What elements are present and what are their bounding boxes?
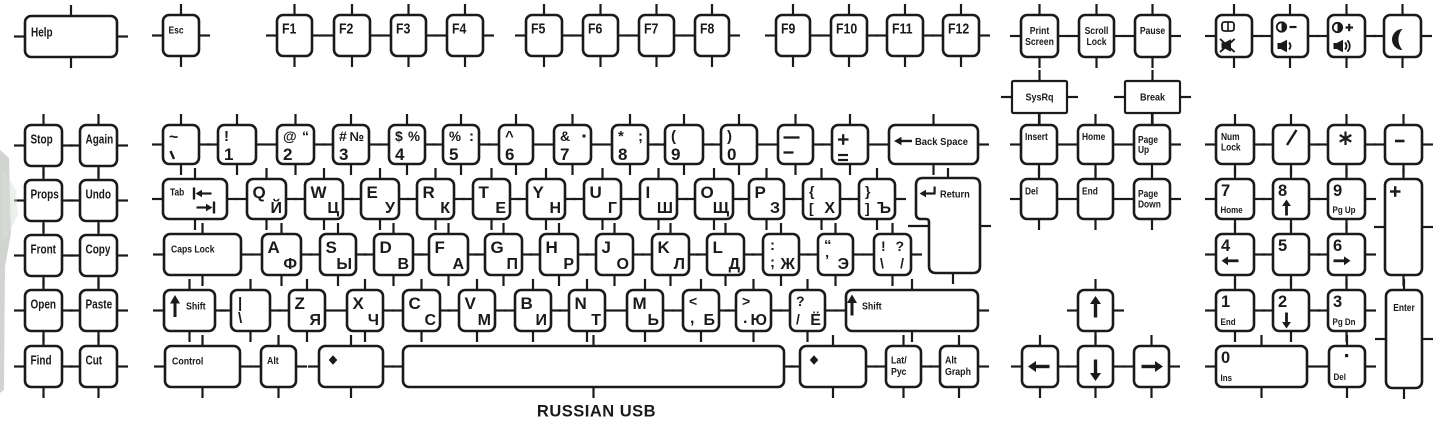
svg-text:Return: Return <box>940 189 970 201</box>
svg-text:4: 4 <box>395 145 405 164</box>
svg-text:П: П <box>507 256 519 273</box>
svg-text:K: K <box>658 238 671 257</box>
svg-text:F10: F10 <box>836 21 857 37</box>
svg-text:Insert: Insert <box>1025 131 1048 142</box>
svg-text:]: ] <box>865 200 870 216</box>
svg-text:Screen: Screen <box>1025 36 1054 47</box>
svg-text:Р: Р <box>563 256 574 273</box>
svg-text:): ) <box>727 128 732 145</box>
svg-text:Esc: Esc <box>169 25 184 37</box>
svg-text:Alt: Alt <box>945 355 957 367</box>
svg-text:@: @ <box>283 128 297 144</box>
svg-text:F8: F8 <box>700 21 715 37</box>
svg-text:’: ’ <box>825 252 829 269</box>
svg-text:0: 0 <box>1221 349 1230 367</box>
svg-text:End: End <box>1082 186 1098 197</box>
svg-text:C: C <box>409 294 421 313</box>
svg-text:Я: Я <box>310 312 322 329</box>
svg-text:Д: Д <box>729 256 741 273</box>
svg-text:Ф: Ф <box>283 256 297 273</box>
svg-text:Щ: Щ <box>713 200 730 217</box>
svg-text:RUSSIAN USB: RUSSIAN USB <box>537 403 656 421</box>
svg-text:5: 5 <box>449 145 458 164</box>
svg-text:Del: Del <box>1025 186 1038 197</box>
svg-text:Ё: Ё <box>810 311 821 329</box>
svg-text:,: , <box>690 310 694 327</box>
svg-text:6: 6 <box>1333 237 1342 255</box>
svg-text:9: 9 <box>671 145 680 164</box>
svg-text:3: 3 <box>339 145 348 164</box>
svg-text:Scroll: Scroll <box>1085 25 1109 36</box>
svg-text:Caps Lock: Caps Lock <box>171 244 215 256</box>
svg-text:Г: Г <box>608 200 617 217</box>
svg-text:%: % <box>408 129 420 144</box>
svg-text:X: X <box>353 294 365 313</box>
svg-text:J: J <box>602 238 611 257</box>
svg-text:F: F <box>435 238 445 257</box>
svg-text:Props: Props <box>31 189 59 202</box>
svg-text:>: > <box>742 293 750 309</box>
svg-text:Enter: Enter <box>1393 302 1415 313</box>
svg-text:F5: F5 <box>531 21 546 37</box>
svg-text:F12: F12 <box>948 21 969 37</box>
svg-text:Ы: Ы <box>336 256 352 273</box>
svg-text:2: 2 <box>1278 293 1287 311</box>
svg-text:Shift: Shift <box>186 301 206 313</box>
svg-text:Э: Э <box>838 256 849 273</box>
svg-text:Break: Break <box>1140 92 1166 104</box>
svg-text:?: ? <box>796 293 805 309</box>
svg-text:Л: Л <box>674 256 685 273</box>
svg-text:<: < <box>689 293 697 309</box>
svg-text:Open: Open <box>31 299 57 312</box>
svg-text:Graph: Graph <box>945 366 971 378</box>
svg-text:Ins: Ins <box>1221 372 1233 383</box>
svg-text:Alt: Alt <box>267 355 279 367</box>
svg-text:F11: F11 <box>892 21 913 37</box>
svg-text:Ъ: Ъ <box>877 200 891 217</box>
svg-text:.: . <box>743 310 747 327</box>
svg-text:9: 9 <box>1333 182 1342 200</box>
svg-text::: : <box>469 128 474 145</box>
svg-text:Ц: Ц <box>327 200 339 217</box>
svg-text:M: M <box>633 294 647 313</box>
svg-text:W: W <box>311 183 328 202</box>
svg-text:Й: Й <box>271 198 283 217</box>
svg-text:E: E <box>367 183 378 202</box>
svg-text:Back Space: Back Space <box>915 137 968 149</box>
svg-text:Tab: Tab <box>170 187 185 198</box>
svg-text:Т: Т <box>591 312 601 329</box>
svg-text:Again: Again <box>86 134 114 147</box>
svg-text:Ю: Ю <box>751 312 768 329</box>
svg-text:Copy: Copy <box>86 244 112 257</box>
svg-text:А: А <box>452 256 464 273</box>
svg-text:Б: Б <box>704 312 716 329</box>
svg-text:F4: F4 <box>452 21 467 37</box>
svg-text:U: U <box>590 183 602 202</box>
svg-text:Ч: Ч <box>368 312 379 329</box>
svg-text:Н: Н <box>549 200 561 217</box>
svg-text:F9: F9 <box>781 21 795 37</box>
svg-text:}: } <box>865 183 871 199</box>
svg-text:F6: F6 <box>588 21 602 37</box>
svg-text:T: T <box>479 183 490 202</box>
svg-text:#: # <box>339 128 347 144</box>
svg-text:“: “ <box>302 128 309 144</box>
svg-text:Q: Q <box>253 183 266 202</box>
svg-text:N: N <box>575 294 587 313</box>
svg-text:Print: Print <box>1030 25 1050 36</box>
svg-text:;: ; <box>770 254 775 271</box>
svg-text:F1: F1 <box>282 21 297 37</box>
svg-text:Home: Home <box>1221 204 1243 215</box>
svg-text:End: End <box>1221 316 1236 327</box>
svg-text:Up: Up <box>1138 144 1150 155</box>
svg-text:%: % <box>449 129 461 144</box>
svg-text:У: У <box>385 200 396 217</box>
svg-text:Cut: Cut <box>86 355 103 368</box>
svg-text:Control: Control <box>172 356 203 368</box>
svg-text:О: О <box>617 256 629 273</box>
svg-text:Pg Up: Pg Up <box>1333 204 1356 215</box>
svg-text:В: В <box>397 256 409 273</box>
svg-text:$: $ <box>395 128 403 144</box>
svg-text:Ж: Ж <box>780 256 796 273</box>
svg-text:Stop: Stop <box>31 134 53 147</box>
svg-text:4: 4 <box>1221 237 1231 255</box>
svg-text:И: И <box>536 312 548 329</box>
svg-text:2: 2 <box>283 145 292 164</box>
svg-text:Lock: Lock <box>1221 142 1241 153</box>
svg-text:B: B <box>521 294 533 313</box>
svg-text:Shift: Shift <box>862 301 882 313</box>
svg-text:Page: Page <box>1138 188 1158 199</box>
svg-text:I: I <box>646 183 651 202</box>
svg-text:6: 6 <box>505 145 514 164</box>
svg-text:V: V <box>465 294 477 313</box>
svg-text:С: С <box>424 312 436 329</box>
svg-text:7: 7 <box>560 145 569 164</box>
svg-text:Del: Del <box>1334 371 1346 382</box>
svg-text:H: H <box>546 238 558 257</box>
svg-text:Find: Find <box>31 355 52 368</box>
svg-text:P: P <box>755 183 766 202</box>
svg-text:Х: Х <box>824 200 835 217</box>
svg-text:Front: Front <box>31 244 57 257</box>
svg-text:3: 3 <box>1333 293 1342 311</box>
svg-text:^: ^ <box>505 128 514 145</box>
svg-text:!: ! <box>881 238 886 254</box>
svg-text:8: 8 <box>1278 182 1287 200</box>
svg-text:L: L <box>713 238 723 257</box>
svg-text:Рус: Рус <box>891 366 907 378</box>
svg-text:Pg Dn: Pg Dn <box>1333 316 1356 327</box>
svg-text:F7: F7 <box>644 21 658 37</box>
svg-text:S: S <box>326 238 337 257</box>
svg-text:[: [ <box>809 200 814 216</box>
svg-text:З: З <box>770 200 780 217</box>
svg-text:A: A <box>268 238 280 257</box>
svg-text:№: № <box>350 129 365 144</box>
svg-text:Z: Z <box>295 294 305 313</box>
svg-text:Home: Home <box>1082 131 1105 142</box>
svg-text:G: G <box>491 238 504 257</box>
svg-text:~: ~ <box>169 129 178 146</box>
svg-text:F2: F2 <box>339 21 353 37</box>
svg-text:К: К <box>440 200 450 217</box>
svg-text:Е: Е <box>495 200 506 217</box>
svg-text:Help: Help <box>31 27 53 40</box>
svg-text:Lock: Lock <box>1086 36 1107 47</box>
svg-text:F3: F3 <box>396 21 410 37</box>
svg-text:М: М <box>478 312 491 329</box>
svg-text:?: ? <box>895 238 904 254</box>
svg-text:0: 0 <box>727 145 736 164</box>
svg-text:Ш: Ш <box>657 200 673 217</box>
svg-text:D: D <box>380 238 392 257</box>
svg-text:SysRq: SysRq <box>1025 92 1053 104</box>
svg-text:Pause: Pause <box>1140 25 1165 36</box>
svg-text:R: R <box>423 183 435 202</box>
svg-text:/: / <box>796 311 800 327</box>
svg-text:!: ! <box>224 128 229 145</box>
svg-text:/: / <box>900 255 904 271</box>
svg-text:\: \ <box>880 255 884 271</box>
svg-text:5: 5 <box>1278 237 1287 255</box>
svg-text:1: 1 <box>1221 293 1230 311</box>
svg-text:*: * <box>618 128 624 145</box>
svg-text:1: 1 <box>224 145 233 164</box>
svg-text:Num: Num <box>1221 131 1240 142</box>
svg-text:Paste: Paste <box>86 299 113 312</box>
svg-text:Down: Down <box>1138 199 1161 210</box>
svg-text::: : <box>770 237 775 254</box>
svg-text:Undo: Undo <box>86 189 112 202</box>
svg-text:(: ( <box>671 128 676 145</box>
svg-text:Y: Y <box>533 183 545 202</box>
svg-text:{: { <box>809 183 815 199</box>
svg-text:Lat/: Lat/ <box>891 355 907 367</box>
svg-text:&: & <box>560 128 570 144</box>
svg-text:7: 7 <box>1221 182 1230 200</box>
svg-text:;: ; <box>638 128 643 145</box>
svg-text:8: 8 <box>618 145 627 164</box>
svg-text:Ь: Ь <box>648 312 660 329</box>
